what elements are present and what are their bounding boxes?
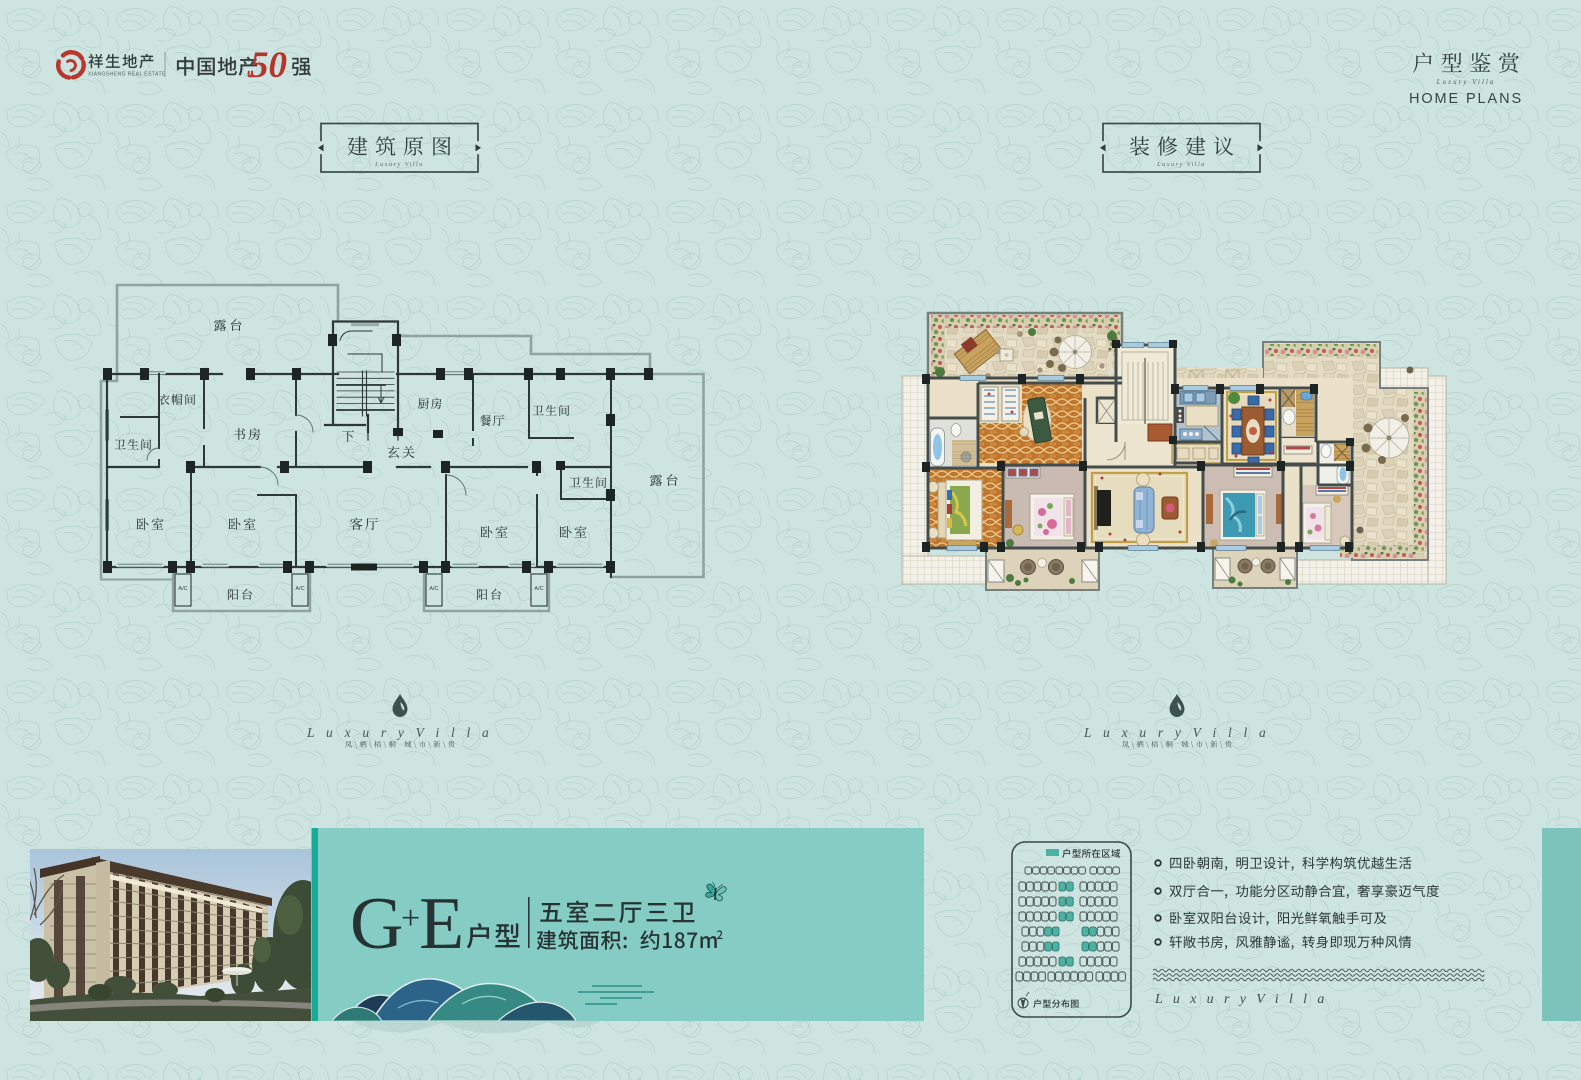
svg-text:XIANGSHENG REAL ESTATE: XIANGSHENG REAL ESTATE [88, 72, 166, 78]
svg-text:+: + [401, 900, 420, 937]
svg-text:E: E [419, 883, 464, 965]
svg-text:G: G [350, 883, 403, 965]
svg-text:Luxury Villa: Luxury Villa [374, 161, 424, 168]
svg-text:50: 50 [250, 45, 287, 86]
svg-text:A/C: A/C [534, 586, 543, 592]
svg-text:Luxury Villa: Luxury Villa [1156, 161, 1206, 168]
svg-text:A/C: A/C [429, 586, 438, 592]
svg-text:L u x u r y V i l l a: L u x u r y V i l l a [1083, 725, 1270, 740]
svg-text:Luxury Villa: Luxury Villa [1436, 78, 1496, 86]
svg-text:A/C: A/C [178, 586, 187, 592]
svg-text:L u x u r y V i l l a: L u x u r y V i l l a [1154, 992, 1328, 1007]
svg-text:A/C: A/C [295, 586, 304, 592]
svg-text:L u x u r y V i l l a: L u x u r y V i l l a [306, 725, 493, 740]
svg-text:HOME PLANS: HOME PLANS [1409, 91, 1523, 107]
